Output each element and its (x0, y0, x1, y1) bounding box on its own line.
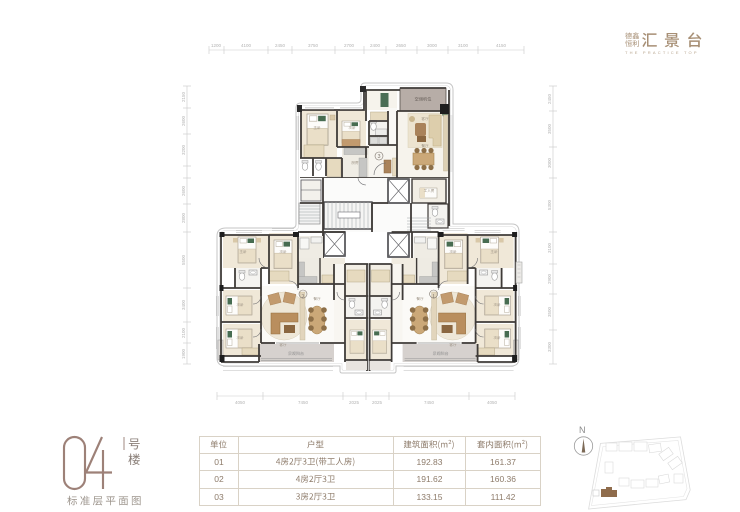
svg-text:2450: 2450 (275, 43, 286, 48)
svg-text:3500: 3500 (547, 306, 552, 317)
svg-text:3300: 3300 (547, 341, 552, 352)
svg-text:2600: 2600 (181, 115, 186, 126)
svg-text:4150: 4150 (496, 43, 507, 48)
svg-text:3200: 3200 (181, 144, 186, 155)
svg-text:1900: 1900 (181, 348, 186, 359)
svg-text:3100: 3100 (547, 242, 552, 253)
svg-text:3: 3 (377, 154, 380, 160)
svg-text:2700: 2700 (344, 43, 355, 48)
svg-text:7450: 7450 (298, 400, 309, 405)
svg-text:3000: 3000 (427, 43, 438, 48)
svg-text:2450: 2450 (547, 93, 552, 104)
svg-text:3400: 3400 (181, 299, 186, 310)
svg-text:1200: 1200 (211, 43, 222, 48)
svg-text:2800: 2800 (181, 212, 186, 223)
svg-text:2025: 2025 (372, 400, 383, 405)
svg-text:3500: 3500 (547, 123, 552, 134)
svg-text:2600: 2600 (181, 185, 186, 196)
svg-text:2100: 2100 (181, 327, 186, 338)
svg-text:4100: 4100 (241, 43, 252, 48)
svg-text:2150: 2150 (181, 91, 186, 102)
svg-text:2650: 2650 (396, 43, 407, 48)
svg-text:2025: 2025 (349, 400, 360, 405)
svg-text:4050: 4050 (487, 400, 498, 405)
svg-text:5500: 5500 (181, 254, 186, 265)
svg-text:2900: 2900 (547, 273, 552, 284)
svg-text:3000: 3000 (547, 157, 552, 168)
svg-text:3100: 3100 (458, 43, 469, 48)
svg-text:4050: 4050 (235, 400, 246, 405)
svg-text:7450: 7450 (424, 400, 435, 405)
svg-text:N: N (579, 425, 586, 435)
svg-text:5300: 5300 (547, 199, 552, 210)
svg-text:2400: 2400 (370, 43, 381, 48)
svg-text:3750: 3750 (308, 43, 319, 48)
